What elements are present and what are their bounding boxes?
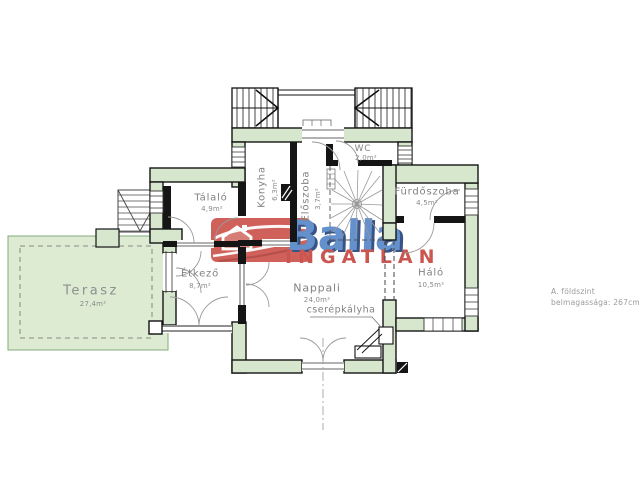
floor-note-line1: A. földszint — [551, 286, 640, 297]
floor-note: A. földszint belmagassága: 267cm — [551, 286, 640, 308]
outer-walls — [150, 128, 478, 373]
windows-and-openings — [149, 126, 478, 371]
exterior-column — [397, 362, 408, 373]
staircase-fan — [330, 166, 383, 240]
floor-plan-drawing — [0, 0, 640, 480]
floor-plan-page: Balla INGATLAN — [0, 0, 640, 480]
tile-stove — [310, 317, 393, 358]
terrace-area — [8, 236, 168, 350]
floor-note-line2: belmagassága: 267cm — [551, 297, 640, 308]
chimney-block — [281, 184, 292, 201]
entrance-stairs — [232, 88, 412, 128]
